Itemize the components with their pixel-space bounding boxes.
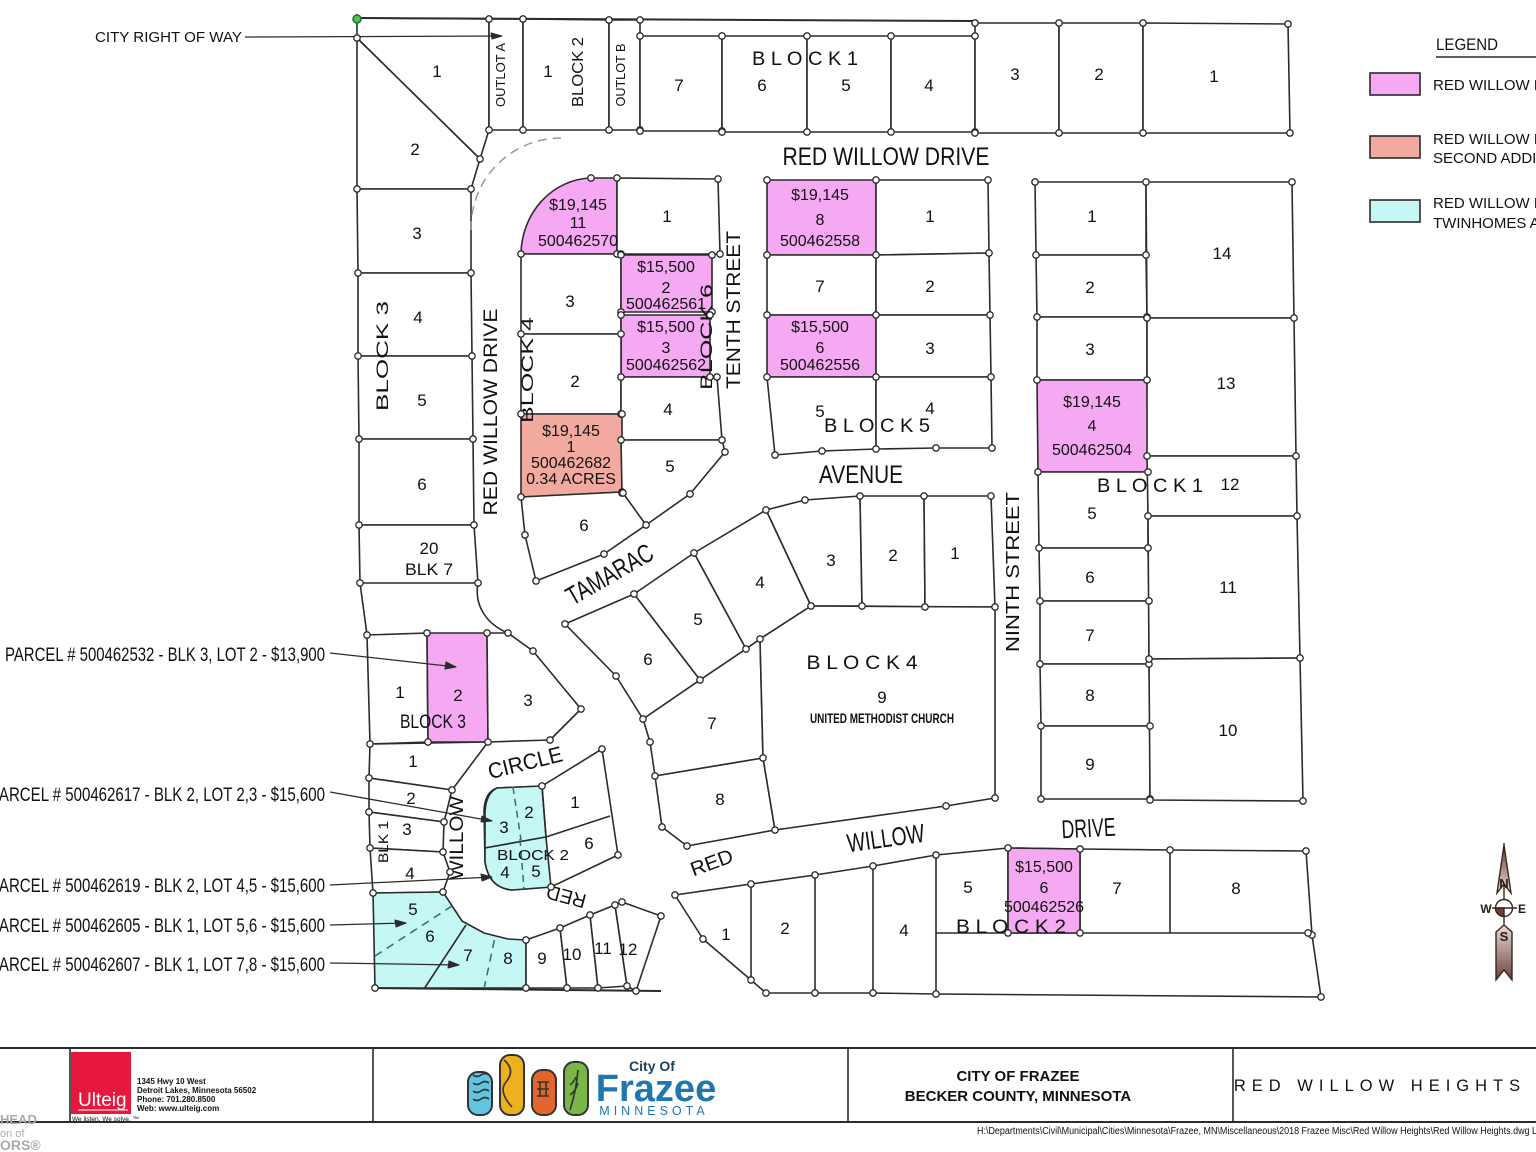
svg-text:5: 5 (693, 610, 702, 629)
svg-text:5: 5 (417, 391, 426, 410)
svg-text:RED WILLOW DRIVE: RED WILLOW DRIVE (783, 143, 990, 171)
svg-text:NINTH STREET: NINTH STREET (1003, 492, 1023, 652)
svg-text:11: 11 (594, 939, 612, 958)
svg-text:BLOCK 3: BLOCK 3 (373, 301, 392, 411)
svg-text:BLOCK 2: BLOCK 2 (570, 37, 587, 107)
svg-text:4: 4 (500, 863, 509, 882)
svg-text:6: 6 (579, 516, 588, 535)
svg-text:MINNESOTA: MINNESOTA (599, 1104, 708, 1118)
svg-text:3: 3 (1085, 340, 1094, 359)
svg-text:4: 4 (925, 399, 934, 418)
svg-text:Detroit Lakes, Minnesota 5650: Detroit Lakes, Minnesota 56502 (137, 1086, 257, 1095)
svg-text:4: 4 (405, 864, 414, 883)
svg-text:9: 9 (1085, 755, 1094, 774)
svg-text:2: 2 (888, 546, 897, 565)
svg-text:500462556: 500462556 (780, 357, 860, 374)
svg-text:8: 8 (1231, 879, 1240, 898)
svg-text:CITY RIGHT OF WAY: CITY RIGHT OF WAY (95, 29, 242, 46)
svg-text:LEGEND: LEGEND (1436, 35, 1498, 54)
svg-text:RED WILLOW HEIGHTS: RED WILLOW HEIGHTS (1433, 195, 1536, 212)
svg-text:1: 1 (925, 207, 934, 226)
svg-text:5: 5 (665, 457, 674, 476)
svg-text:Web: www.ulteig.com: Web: www.ulteig.com (137, 1104, 219, 1113)
svg-text:10: 10 (1219, 721, 1238, 740)
svg-text:7: 7 (674, 76, 683, 95)
svg-text:2: 2 (406, 789, 415, 808)
svg-text:2: 2 (524, 803, 533, 822)
svg-text:1345 Hwy 10 West: 1345 Hwy 10 West (137, 1077, 206, 1086)
svg-text:500462558: 500462558 (780, 233, 860, 250)
svg-text:2: 2 (570, 372, 579, 391)
svg-text:$19,145: $19,145 (549, 197, 607, 214)
svg-text:1: 1 (432, 62, 441, 81)
svg-text:Phone: 701.280.8500: Phone: 701.280.8500 (137, 1095, 216, 1104)
svg-text:2: 2 (925, 277, 934, 296)
svg-text:PARCEL # 500462532 - BLK 3, LO: PARCEL # 500462532 - BLK 3, LOT 2 - $13,… (5, 645, 325, 666)
svg-text:6: 6 (643, 650, 652, 669)
svg-text:3: 3 (1010, 65, 1019, 84)
svg-text:RED WILLOW HEIGHTS: RED WILLOW HEIGHTS (1433, 131, 1536, 148)
svg-text:PARCEL # 500462607 - BLK 1, LO: PARCEL # 500462607 - BLK 1, LOT 7,8 - $1… (0, 955, 325, 976)
svg-text:4: 4 (924, 76, 933, 95)
svg-text:7: 7 (463, 946, 472, 965)
svg-text:1: 1 (395, 683, 404, 702)
svg-text:500462562: 500462562 (626, 357, 706, 374)
svg-text:B L O C K 1: B L O C K 1 (1097, 476, 1203, 497)
svg-text:$19,145: $19,145 (542, 423, 600, 440)
svg-text:S: S (1500, 929, 1509, 944)
svg-text:5: 5 (1087, 504, 1096, 523)
svg-text:9: 9 (537, 949, 546, 968)
svg-text:6: 6 (816, 340, 825, 357)
svg-text:$15,500: $15,500 (791, 319, 849, 336)
svg-text:4: 4 (899, 921, 908, 940)
svg-text:10: 10 (563, 945, 582, 964)
svg-text:UNITED METHODIST CHURCH: UNITED METHODIST CHURCH (810, 710, 954, 726)
svg-text:8: 8 (503, 949, 512, 968)
svg-text:3: 3 (412, 224, 421, 243)
svg-text:3: 3 (523, 691, 532, 710)
svg-text:8: 8 (1085, 686, 1094, 705)
svg-text:CITY OF FRAZEE: CITY OF FRAZEE (956, 1068, 1079, 1085)
svg-text:B L O C K 1: B L O C K 1 (752, 49, 858, 70)
svg-text:3: 3 (662, 340, 671, 357)
svg-text:5: 5 (815, 402, 824, 421)
svg-text:RED WILLOW DRIVE: RED WILLOW DRIVE (481, 309, 502, 516)
svg-text:TWINHOMES ADDITION: TWINHOMES ADDITION (1433, 215, 1536, 232)
svg-text:7: 7 (1112, 879, 1121, 898)
svg-text:4: 4 (413, 308, 422, 327)
svg-text:RED WILLOW HEIGHTS: RED WILLOW HEIGHTS (1234, 1077, 1526, 1095)
svg-text:6: 6 (425, 927, 434, 946)
svg-text:5: 5 (841, 76, 850, 95)
svg-text:1: 1 (721, 925, 730, 944)
svg-text:Ulteig: Ulteig (78, 1090, 127, 1111)
svg-text:2: 2 (780, 919, 789, 938)
svg-text:3: 3 (565, 292, 574, 311)
svg-text:E: E (1518, 902, 1526, 916)
svg-text:20: 20 (420, 539, 439, 558)
svg-text:$19,145: $19,145 (1063, 394, 1121, 411)
svg-text:$15,500: $15,500 (637, 319, 695, 336)
svg-text:1: 1 (408, 752, 417, 771)
svg-text:13: 13 (1217, 374, 1236, 393)
svg-text:6: 6 (757, 76, 766, 95)
svg-text:8: 8 (816, 212, 825, 229)
svg-text:1: 1 (662, 207, 671, 226)
svg-text:5: 5 (531, 862, 540, 881)
svg-text:7: 7 (1085, 626, 1094, 645)
svg-text:BLK 7: BLK 7 (405, 560, 453, 579)
svg-text:BLK 1: BLK 1 (375, 821, 391, 863)
svg-text:3: 3 (402, 820, 411, 839)
svg-text:2: 2 (1085, 278, 1094, 297)
svg-text:OUTLOT A: OUTLOT A (493, 43, 508, 107)
svg-text:TENTH STREET: TENTH STREET (724, 231, 745, 389)
svg-text:OUTLOT B: OUTLOT B (613, 44, 628, 107)
svg-text:B L O C K 5: B L O C K 5 (824, 416, 930, 437)
svg-text:4: 4 (1088, 418, 1097, 435)
svg-text:HEAD: HEAD (0, 1112, 37, 1127)
svg-text:AVENUE: AVENUE (819, 461, 903, 489)
svg-text:7: 7 (707, 714, 716, 733)
svg-text:7: 7 (815, 277, 824, 296)
svg-text:PARCEL # 500462617 - BLK 2, LO: PARCEL # 500462617 - BLK 2, LOT 2,3 - $1… (0, 785, 325, 806)
svg-text:2: 2 (453, 686, 462, 705)
svg-text:3: 3 (826, 551, 835, 570)
svg-text:2: 2 (410, 140, 419, 159)
svg-text:H:\Departments\Civil\Municipal: H:\Departments\Civil\Municipal\Cities\Mi… (977, 1126, 1536, 1137)
svg-text:DRIVE: DRIVE (1061, 812, 1116, 845)
svg-text:6: 6 (584, 834, 593, 853)
svg-text:6: 6 (417, 475, 426, 494)
svg-text:1: 1 (950, 544, 959, 563)
svg-text:We listen. We solve. ™: We listen. We solve. ™ (72, 1116, 139, 1123)
svg-text:4: 4 (755, 573, 764, 592)
svg-text:WILLOW: WILLOW (447, 796, 468, 880)
svg-text:1: 1 (543, 62, 552, 81)
svg-text:4: 4 (663, 400, 672, 419)
svg-text:W: W (1480, 902, 1492, 916)
svg-text:500462561: 500462561 (626, 296, 706, 313)
svg-text:12: 12 (619, 940, 638, 959)
svg-text:ORS®: ORS® (0, 1137, 41, 1152)
svg-text:BECKER COUNTY, MINNESOTA: BECKER COUNTY, MINNESOTA (905, 1088, 1132, 1105)
svg-text:6: 6 (1040, 880, 1049, 897)
svg-text:2: 2 (662, 280, 671, 297)
svg-text:11: 11 (1219, 578, 1237, 597)
svg-text:RED WILLOW HEIGHTS: RED WILLOW HEIGHTS (1433, 77, 1536, 94)
svg-text:11: 11 (570, 215, 587, 232)
svg-text:14: 14 (1213, 244, 1232, 263)
svg-text:6: 6 (1085, 568, 1094, 587)
svg-text:3: 3 (499, 818, 508, 837)
svg-text:PARCEL # 500462619 - BLK 2, LO: PARCEL # 500462619 - BLK 2, LOT 4,5 - $1… (0, 876, 325, 897)
svg-text:B L O C K 4: B L O C K 4 (807, 653, 918, 674)
svg-text:5: 5 (963, 878, 972, 897)
svg-text:9: 9 (877, 688, 886, 707)
svg-text:1: 1 (1209, 67, 1218, 86)
svg-text:500462526: 500462526 (1004, 899, 1084, 916)
svg-text:2: 2 (1094, 65, 1103, 84)
svg-text:SECOND ADDITION: SECOND ADDITION (1433, 150, 1536, 167)
svg-text:$15,500: $15,500 (1015, 859, 1073, 876)
svg-text:5: 5 (408, 900, 417, 919)
svg-text:PARCEL # 500462605 - BLK 1, LO: PARCEL # 500462605 - BLK 1, LOT 5,6 - $1… (0, 916, 325, 937)
svg-text:BLOCK 3: BLOCK 3 (400, 712, 466, 733)
svg-text:$19,145: $19,145 (791, 187, 849, 204)
svg-text:500462682: 500462682 (531, 455, 611, 472)
svg-text:8: 8 (715, 790, 724, 809)
svg-text:500462504: 500462504 (1052, 442, 1132, 459)
svg-text:0.34 ACRES: 0.34 ACRES (526, 471, 616, 488)
svg-text:1: 1 (570, 793, 579, 812)
svg-text:1: 1 (1087, 207, 1096, 226)
svg-text:N: N (1499, 876, 1508, 891)
svg-text:1: 1 (567, 439, 576, 456)
svg-text:500462570: 500462570 (538, 233, 618, 250)
svg-text:3: 3 (925, 339, 934, 358)
svg-text:12: 12 (1221, 475, 1240, 494)
svg-text:$15,500: $15,500 (637, 259, 695, 276)
